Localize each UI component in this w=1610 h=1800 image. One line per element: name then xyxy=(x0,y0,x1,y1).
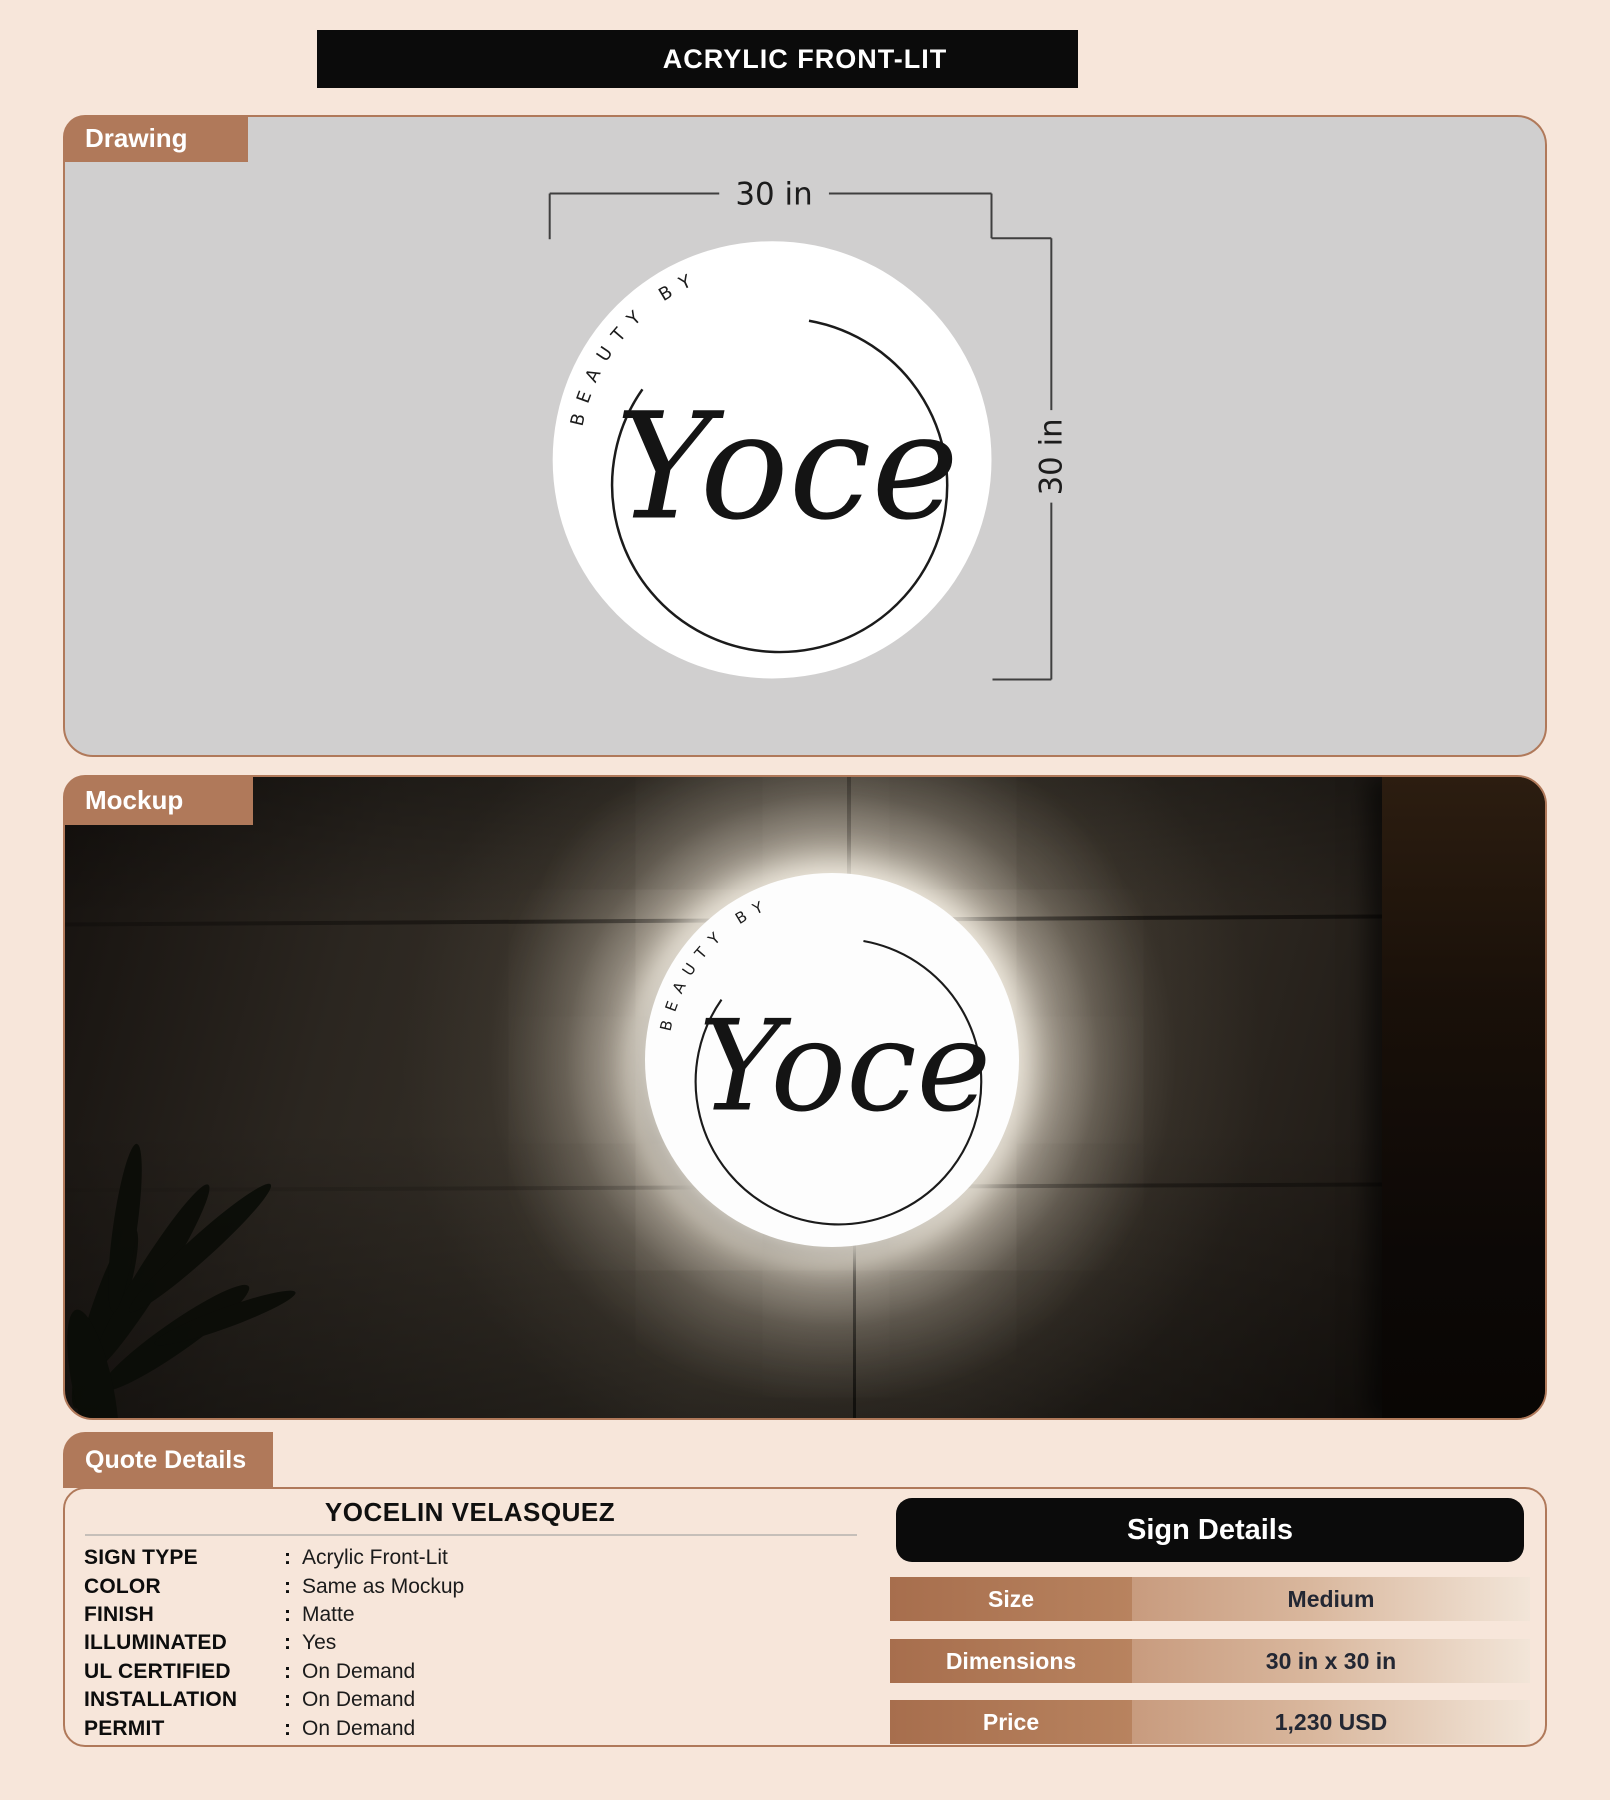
field-label: SIGN TYPE xyxy=(84,1546,284,1570)
field-separator: : xyxy=(284,1575,302,1599)
field-separator: : xyxy=(284,1603,302,1627)
illuminated-sign: BEAUTY BY Yoce xyxy=(645,873,1019,1247)
field-separator: : xyxy=(284,1717,302,1741)
quote-field-row: FINISH : Matte xyxy=(84,1601,864,1629)
sign-details-row-dimensions: Dimensions 30 in x 30 in xyxy=(890,1639,1530,1683)
sign-details-row-price: Price 1,230 USD xyxy=(890,1700,1530,1744)
row-value: 30 in x 30 in xyxy=(1132,1639,1530,1683)
field-label: INSTALLATION xyxy=(84,1688,284,1712)
field-value: Matte xyxy=(302,1603,355,1627)
field-separator: : xyxy=(284,1631,302,1655)
field-value: Acrylic Front-Lit xyxy=(302,1546,448,1570)
logo-drawing: BEAUTY BY Yoce xyxy=(553,241,992,678)
width-dimension-label: 30 in xyxy=(735,177,812,213)
field-separator: : xyxy=(284,1546,302,1570)
quote-details-section-tab: Quote Details xyxy=(63,1432,273,1488)
row-label: Dimensions xyxy=(890,1639,1132,1683)
field-value: Yes xyxy=(302,1631,336,1655)
row-value: Medium xyxy=(1132,1577,1530,1621)
drawing-section-tab: Drawing xyxy=(63,115,248,162)
mockup-tab-label: Mockup xyxy=(85,785,183,816)
sign-details-title: Sign Details xyxy=(1127,1514,1293,1547)
plant-silhouette xyxy=(65,988,375,1418)
field-label: UL CERTIFIED xyxy=(84,1660,284,1684)
logo-script-text: Yoce xyxy=(698,992,991,1139)
field-label: PERMIT xyxy=(84,1717,284,1741)
logo-script-text: Yoce xyxy=(615,381,958,553)
drawing-tab-label: Drawing xyxy=(85,123,188,154)
sign-details-row-size: Size Medium xyxy=(890,1577,1530,1621)
field-label: ILLUMINATED xyxy=(84,1631,284,1655)
quote-field-row: SIGN TYPE : Acrylic Front-Lit xyxy=(84,1544,864,1572)
quote-fields-list: SIGN TYPE : Acrylic Front-Lit COLOR : Sa… xyxy=(84,1544,864,1743)
field-value: Same as Mockup xyxy=(302,1575,464,1599)
quote-details-tab-label: Quote Details xyxy=(85,1446,246,1475)
name-divider xyxy=(85,1534,857,1536)
quote-field-row: ILLUMINATED : Yes xyxy=(84,1629,864,1657)
mockup-panel: BEAUTY BY Yoce xyxy=(63,775,1547,1420)
logo-mockup: BEAUTY BY Yoce xyxy=(645,873,1019,1247)
row-label: Price xyxy=(890,1700,1132,1744)
page-title: ACRYLIC FRONT-LIT xyxy=(0,30,1610,88)
quote-field-row: PERMIT : On Demand xyxy=(84,1714,864,1742)
field-label: COLOR xyxy=(84,1575,284,1599)
quote-field-row: INSTALLATION : On Demand xyxy=(84,1686,864,1714)
quote-field-row: COLOR : Same as Mockup xyxy=(84,1572,864,1600)
field-value: On Demand xyxy=(302,1717,415,1741)
field-separator: : xyxy=(284,1688,302,1712)
field-value: On Demand xyxy=(302,1688,415,1712)
field-value: On Demand xyxy=(302,1660,415,1684)
quote-field-row: UL CERTIFIED : On Demand xyxy=(84,1658,864,1686)
dark-wood-panel xyxy=(1382,777,1547,1418)
sign-details-header: Sign Details xyxy=(896,1498,1524,1562)
field-label: FINISH xyxy=(84,1603,284,1627)
mockup-section-tab: Mockup xyxy=(63,775,253,825)
field-separator: : xyxy=(284,1660,302,1684)
drawing-diagram: 30 in 30 in BEAUTY BY Yoce xyxy=(65,117,1545,755)
height-dimension-label: 30 in xyxy=(1033,418,1069,495)
drawing-panel: 30 in 30 in BEAUTY BY Yoce xyxy=(63,115,1547,757)
quote-sheet-page: ACRYLIC FRONT-LIT 30 in 30 in B xyxy=(0,0,1610,1800)
row-value: 1,230 USD xyxy=(1132,1700,1530,1744)
row-label: Size xyxy=(890,1577,1132,1621)
customer-name: YOCELIN VELASQUEZ xyxy=(84,1497,856,1528)
sign-cable xyxy=(853,1245,856,1420)
